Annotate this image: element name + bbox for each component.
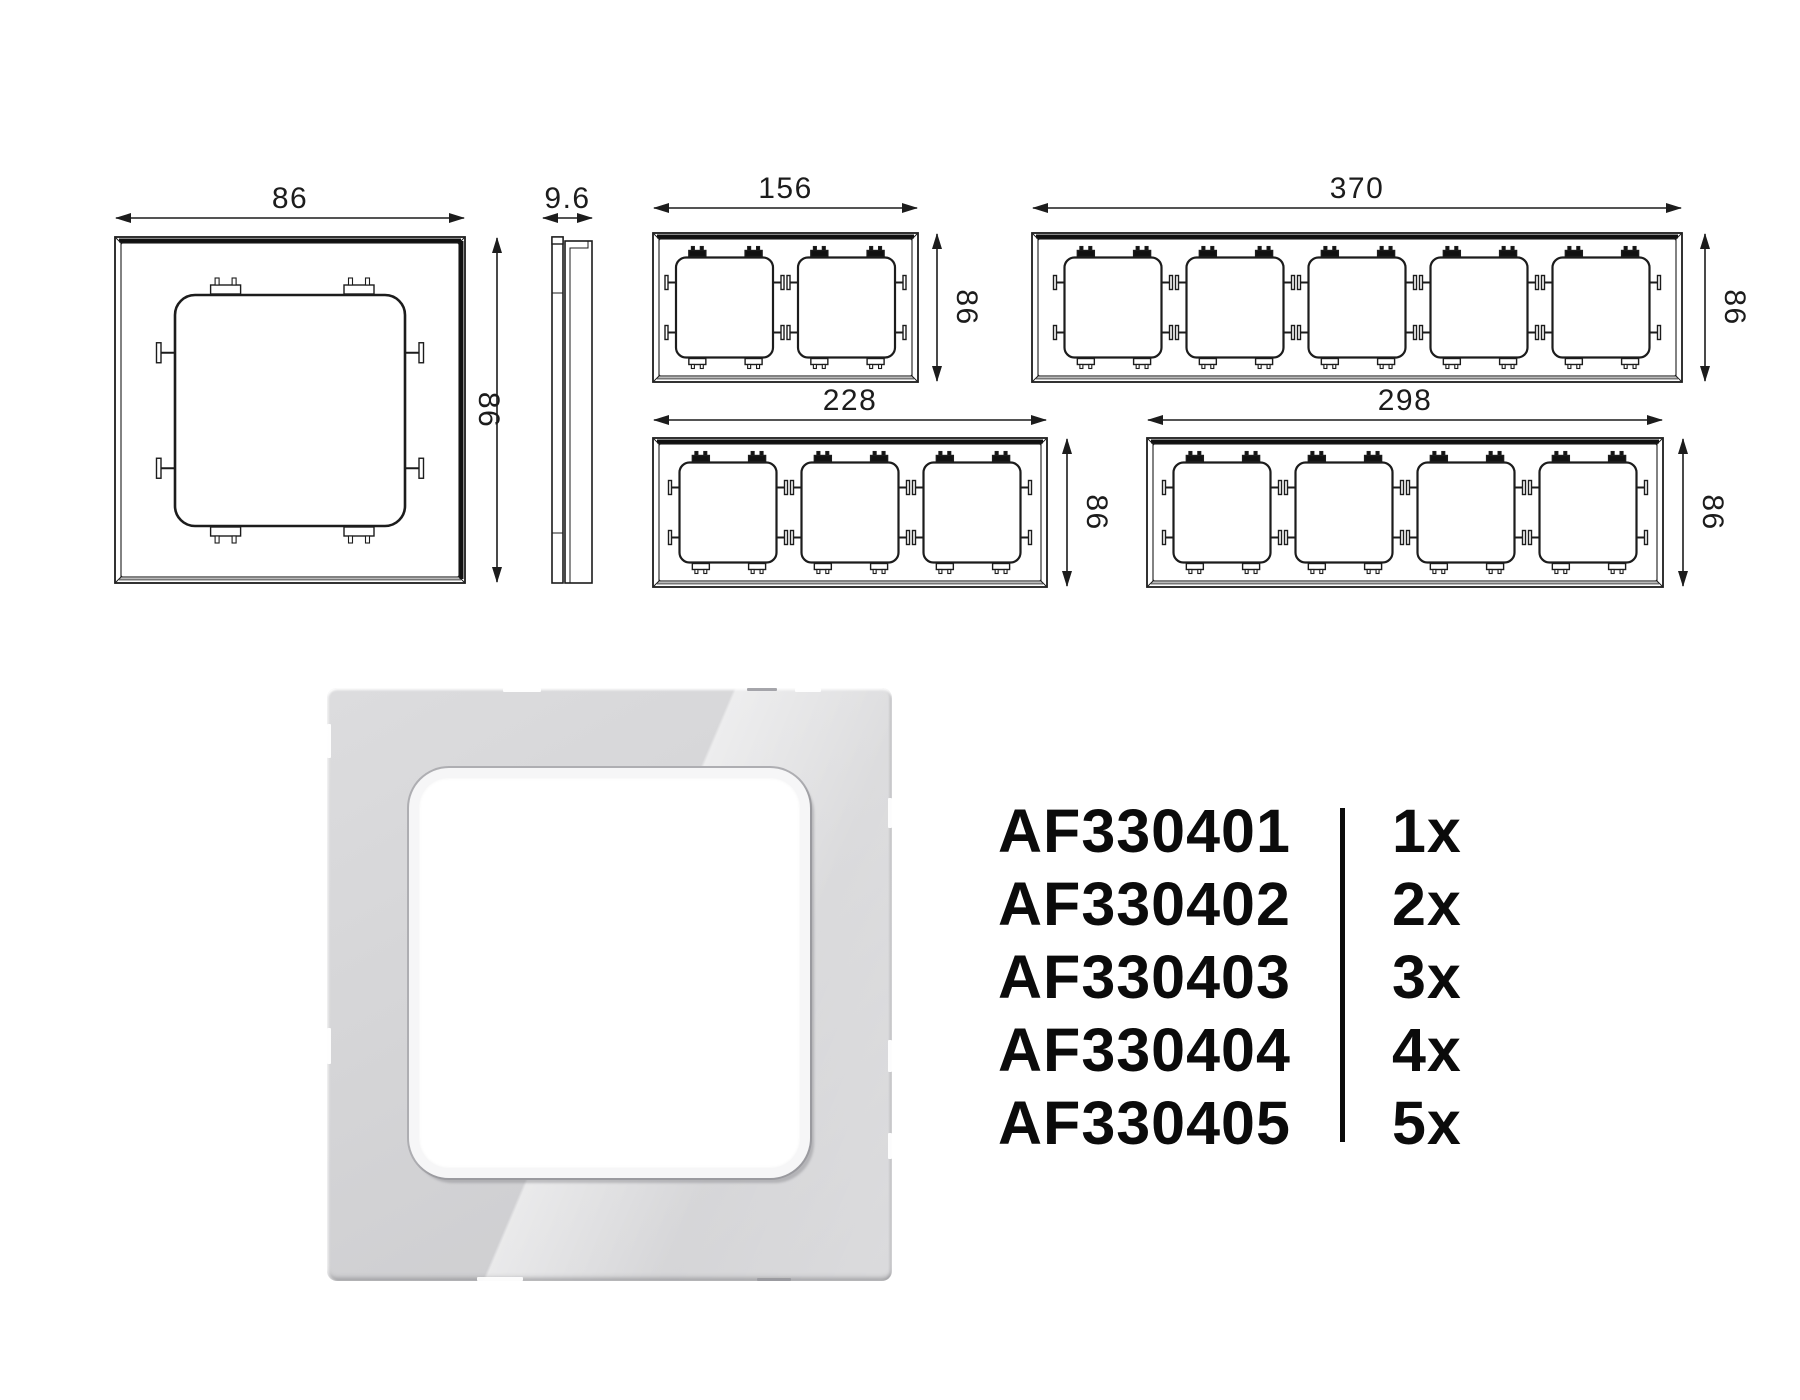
dimension-label: 370 (1330, 172, 1385, 205)
dimension-label: 228 (823, 384, 878, 417)
plate-edge-notch (888, 1133, 892, 1159)
product-render-glass-frame (327, 688, 892, 1281)
plate-edge-notch (503, 688, 541, 692)
part-code: AF330404 (998, 1015, 1342, 1085)
technical-drawings-canvas: 8686156863708622886298869.6 (0, 0, 1800, 1400)
dimension-label: 86 (950, 289, 983, 325)
plate-edge-notch (795, 688, 821, 692)
part-code: AF330401 (998, 796, 1342, 866)
product-spec-sheet: 8686156863708622886298869.6 AF3304011xAF… (0, 0, 1800, 1400)
part-quantity: 1x (1342, 796, 1462, 866)
part-code: AF330403 (998, 942, 1342, 1012)
parts-list-row: AF3304055x (998, 1086, 1558, 1159)
plate-edge-notch (747, 688, 777, 691)
dimension-label: 86 (1696, 494, 1729, 530)
dimension-label: 298 (1378, 384, 1433, 417)
frame-side-profile-drawing: 9.6 (543, 182, 592, 583)
dimension-label: 9.6 (544, 182, 590, 215)
part-code: AF330402 (998, 869, 1342, 939)
parts-list-row: AF3304022x (998, 867, 1558, 940)
plate-edge-notch (327, 1028, 331, 1064)
part-quantity: 4x (1342, 1015, 1462, 1085)
frame-opening (419, 778, 800, 1168)
frame-3-gang-drawing: 22886 (653, 384, 1113, 587)
part-quantity: 2x (1342, 869, 1462, 939)
dimension-label: 86 (472, 392, 505, 428)
dimension-label: 86 (272, 182, 308, 215)
frame-1-gang-drawing: 8686 (115, 182, 505, 583)
dimension-label: 156 (758, 172, 813, 205)
plate-edge-notch (888, 1040, 892, 1072)
plate-edge-notch (327, 724, 331, 758)
frame-4-gang-drawing: 29886 (1147, 384, 1729, 587)
parts-list-row: AF3304044x (998, 1013, 1558, 1086)
dimension-label: 86 (1080, 494, 1113, 530)
plate-edge-notch (477, 1277, 523, 1281)
dimension-label: 86 (1718, 289, 1751, 325)
parts-list-row: AF3304033x (998, 940, 1558, 1013)
parts-list-divider (1340, 808, 1345, 1142)
plate-edge-notch (757, 1278, 791, 1281)
parts-list: AF3304011xAF3304022xAF3304033xAF3304044x… (998, 794, 1558, 1159)
plate-edge-notch (888, 798, 892, 828)
part-quantity: 5x (1342, 1088, 1462, 1158)
frame-2-gang-drawing: 15686 (653, 172, 983, 382)
frame-5-gang-drawing: 37086 (1032, 172, 1751, 382)
part-quantity: 3x (1342, 942, 1462, 1012)
parts-list-row: AF3304011x (998, 794, 1558, 867)
part-code: AF330405 (998, 1088, 1342, 1158)
